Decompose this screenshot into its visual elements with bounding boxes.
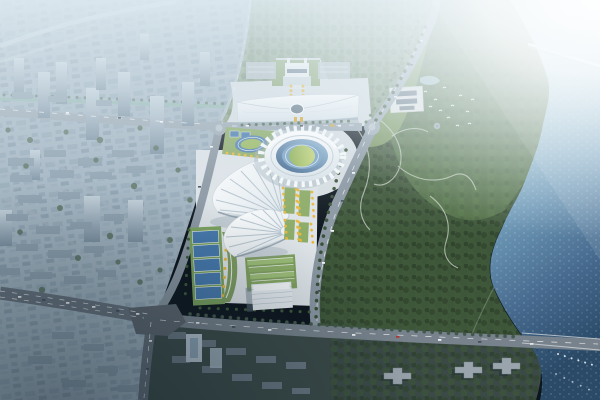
- atmosphere: [0, 0, 600, 400]
- render-canvas: [0, 0, 600, 400]
- aerial-render: [0, 0, 600, 400]
- shadow-vignette: [0, 0, 600, 400]
